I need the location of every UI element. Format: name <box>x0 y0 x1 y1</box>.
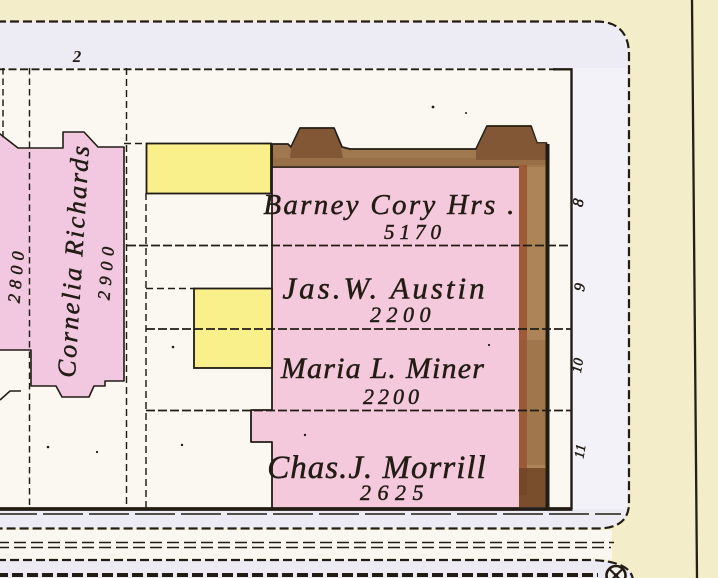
svg-text:2: 2 <box>72 47 82 66</box>
svg-text:11: 11 <box>572 442 589 459</box>
svg-text:Jas.W. Austin: Jas.W. Austin <box>282 271 487 306</box>
svg-text:5170: 5170 <box>384 220 446 244</box>
svg-text:10: 10 <box>570 357 587 374</box>
svg-text:2200: 2200 <box>363 384 423 409</box>
svg-text:2625: 2625 <box>360 480 430 505</box>
svg-text:Barney Cory Hrs .: Barney Cory Hrs . <box>263 189 516 221</box>
svg-text:Maria L. Miner: Maria L. Miner <box>280 352 485 385</box>
svg-text:2200: 2200 <box>370 302 436 327</box>
